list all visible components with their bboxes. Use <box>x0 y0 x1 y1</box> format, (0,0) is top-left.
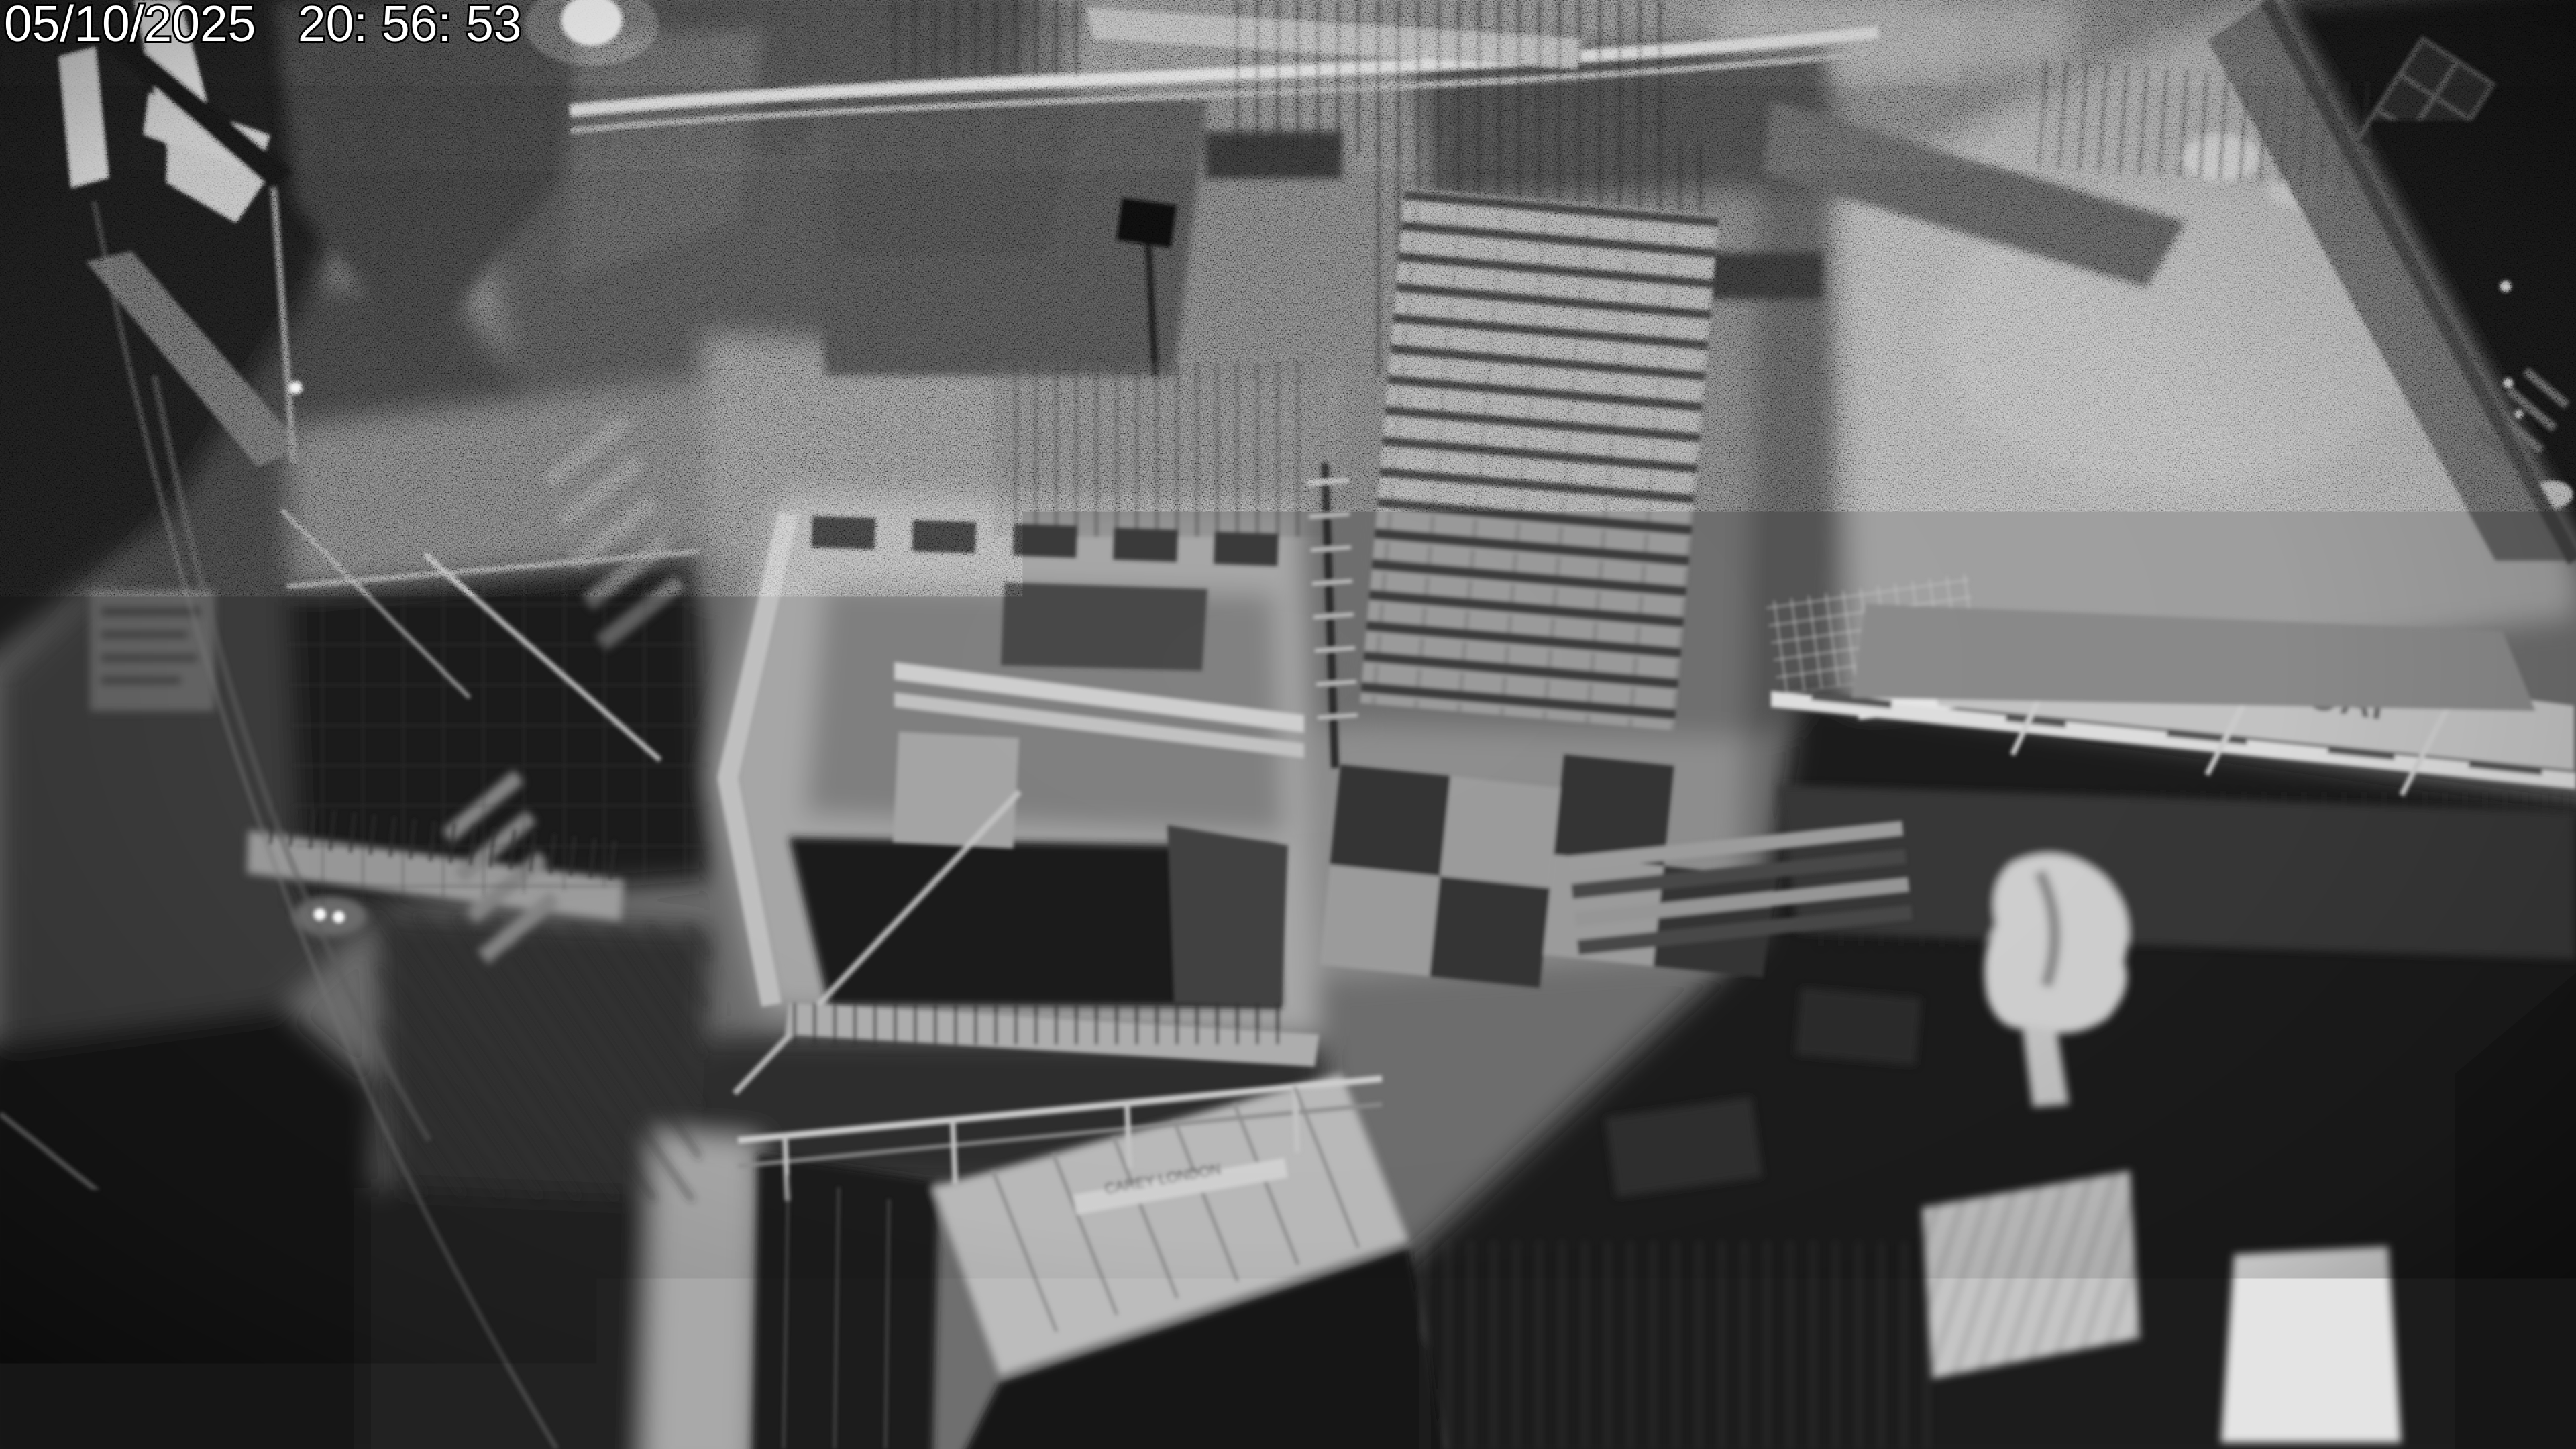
svg-text:05/10/2025 20: 56: 53: 05/10/2025 20: 56: 53 <box>4 0 522 52</box>
